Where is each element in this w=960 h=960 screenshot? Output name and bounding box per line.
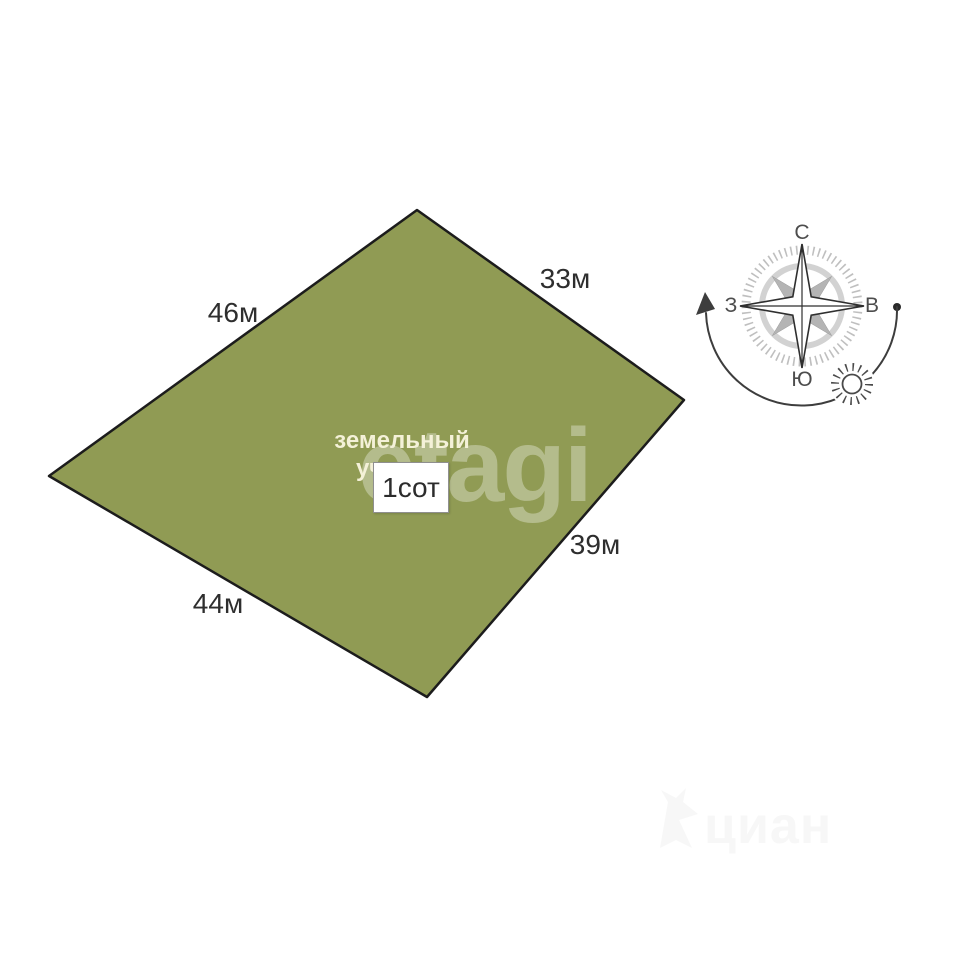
cian-watermark: циан: [646, 780, 866, 880]
plot-area-label: 1сот: [382, 472, 440, 504]
plot-area-box: 1сот: [373, 462, 449, 513]
compass-rose: [740, 244, 864, 368]
land-plot-diagram: etagi земельный участок 1сот 33м 46м 39м…: [0, 0, 960, 960]
dimension-label-bottom-left: 44м: [183, 588, 253, 620]
compass-label-south: Ю: [790, 368, 814, 392]
dimension-label-top-left: 46м: [198, 297, 268, 329]
cian-watermark-text: циан: [704, 796, 832, 856]
dimension-label-bottom-right: 39м: [560, 529, 630, 561]
dimension-label-top-right: 33м: [530, 263, 600, 295]
compass-label-west: З: [719, 294, 743, 318]
sun-path-arrowhead: [696, 292, 715, 315]
compass-label-east: В: [860, 294, 884, 318]
compass-label-north: С: [790, 221, 814, 245]
cian-bird-icon: [646, 780, 706, 875]
sun-icon: [829, 361, 875, 407]
